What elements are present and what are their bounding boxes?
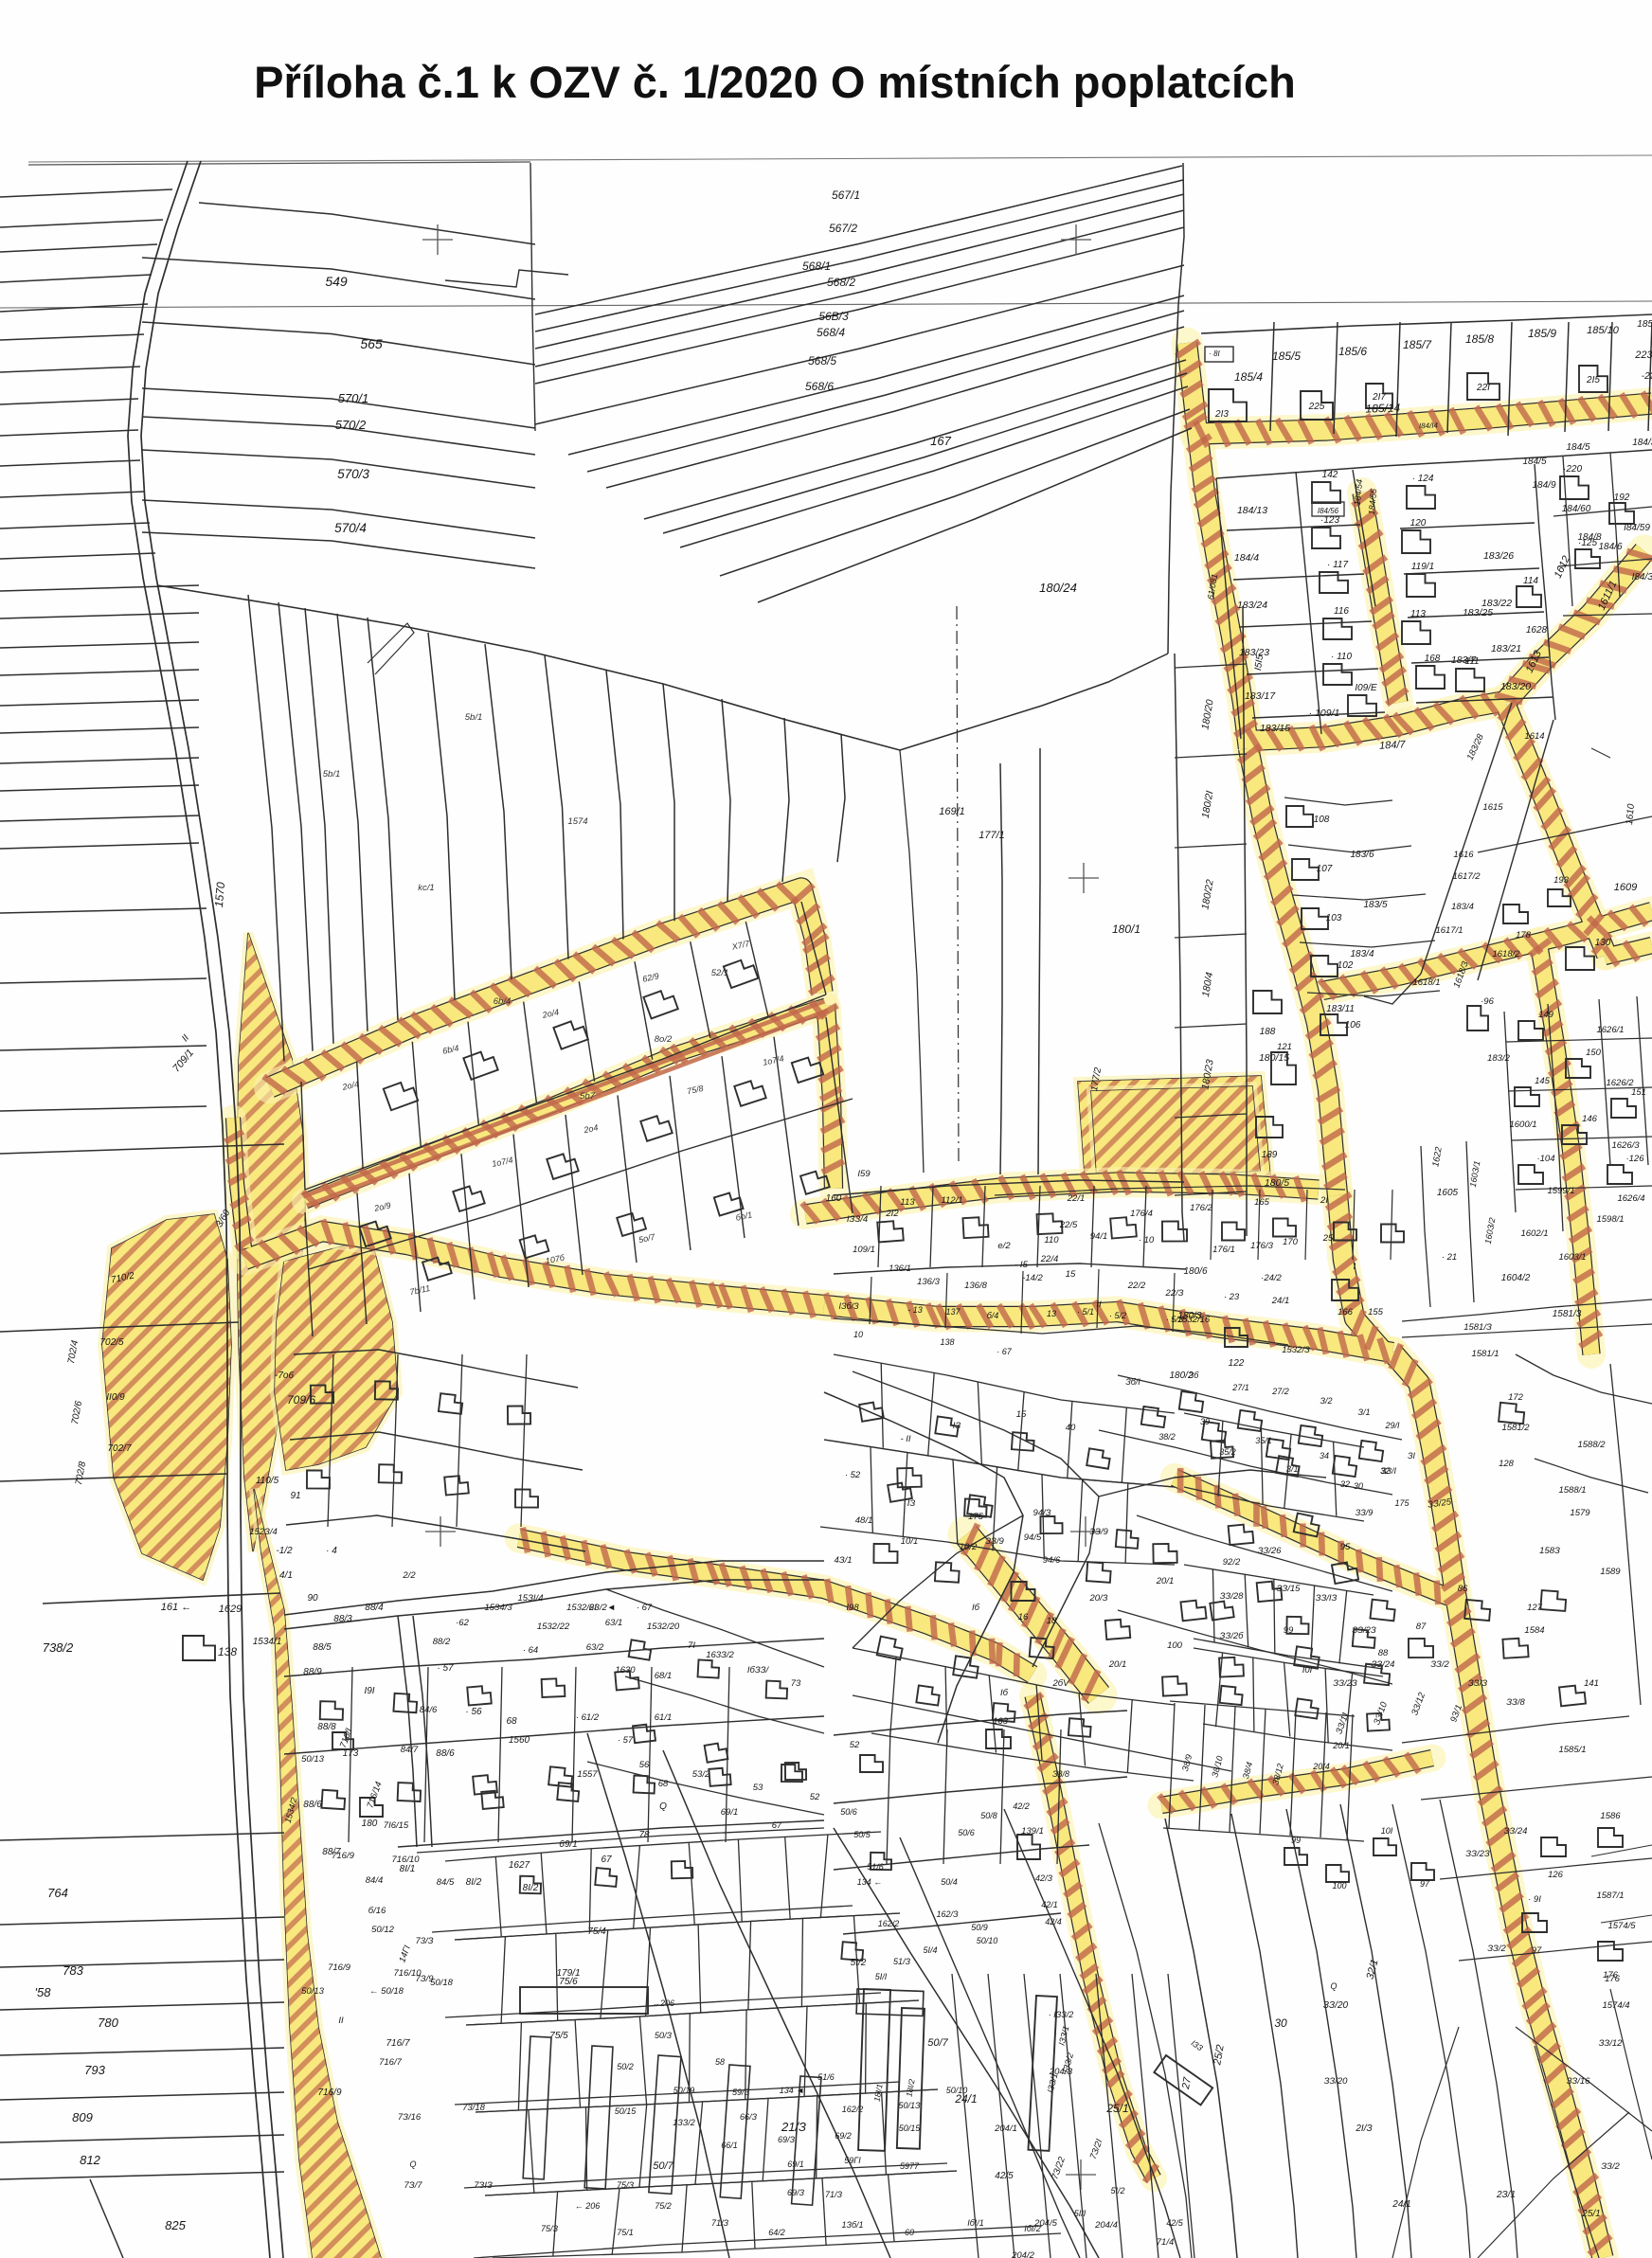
svg-text:1599/1: 1599/1 bbox=[1547, 1186, 1574, 1196]
svg-text:· I5: · I5 bbox=[1015, 1260, 1028, 1270]
svg-text:I98: I98 bbox=[846, 1603, 859, 1613]
svg-text:184/4: 184/4 bbox=[1234, 552, 1259, 564]
svg-text:780: 780 bbox=[98, 2016, 118, 2030]
svg-text:568/6: 568/6 bbox=[805, 380, 834, 393]
svg-text:716/7: 716/7 bbox=[379, 2057, 402, 2068]
svg-text:IЗ: IЗ bbox=[907, 1498, 916, 1509]
svg-text:2/2: 2/2 bbox=[402, 1570, 416, 1581]
svg-text:1557: 1557 bbox=[577, 1769, 598, 1780]
svg-text:87: 87 bbox=[1416, 1622, 1427, 1632]
svg-text:88: 88 bbox=[1378, 1648, 1389, 1658]
svg-text:51/6: 51/6 bbox=[867, 1862, 884, 1872]
svg-text:5b/1: 5b/1 bbox=[323, 769, 341, 780]
svg-text:1534/1: 1534/1 bbox=[253, 1637, 282, 1647]
svg-text:I84/59: I84/59 bbox=[1624, 523, 1650, 533]
svg-text:184/9: 184/9 bbox=[1532, 480, 1555, 491]
svg-text:·62: ·62 bbox=[456, 1618, 469, 1628]
svg-text:163: 163 bbox=[993, 1716, 1009, 1727]
svg-text:1534/3: 1534/3 bbox=[484, 1603, 512, 1613]
svg-text:702/7: 702/7 bbox=[107, 1443, 131, 1454]
svg-text:88/6: 88/6 bbox=[303, 1800, 322, 1810]
svg-text:2I3: 2I3 bbox=[1214, 409, 1229, 420]
svg-text:88/2: 88/2 bbox=[433, 1637, 451, 1647]
svg-text:1598/1: 1598/1 bbox=[1596, 1214, 1624, 1225]
svg-text:8o/2: 8o/2 bbox=[655, 1034, 673, 1045]
svg-text:42/5: 42/5 bbox=[995, 2171, 1014, 2181]
svg-text:155: 155 bbox=[1368, 1307, 1384, 1317]
svg-text:1626/2: 1626/2 bbox=[1606, 1078, 1634, 1088]
svg-text:24/1: 24/1 bbox=[1392, 2199, 1410, 2210]
svg-text:← 206: ← 206 bbox=[575, 2201, 601, 2211]
svg-text:69/1: 69/1 bbox=[559, 1839, 577, 1850]
svg-text:185/14: 185/14 bbox=[1365, 401, 1400, 415]
svg-text:568/5: 568/5 bbox=[808, 354, 836, 367]
svg-text:128: 128 bbox=[1499, 1459, 1515, 1469]
svg-text:ЗЗ/2З: ЗЗ/2З bbox=[1465, 1849, 1490, 1859]
svg-text:176/1: 176/1 bbox=[1212, 1245, 1235, 1255]
svg-text:63/2: 63/2 bbox=[586, 1642, 604, 1653]
svg-text:1630: 1630 bbox=[615, 1665, 636, 1676]
svg-text:5I/2: 5I/2 bbox=[1110, 2186, 1124, 2195]
svg-text:88/6: 88/6 bbox=[436, 1748, 455, 1759]
svg-text:1605: 1605 bbox=[1437, 1188, 1459, 1198]
svg-text:68: 68 bbox=[506, 1716, 517, 1727]
svg-text:84/7: 84/7 bbox=[401, 1745, 419, 1755]
svg-text:122: 122 bbox=[1229, 1358, 1245, 1369]
svg-text:ЗЗ/2: ЗЗ/2 bbox=[1430, 1659, 1449, 1670]
svg-text:e/2: e/2 bbox=[997, 1241, 1011, 1251]
svg-text:ЗЗ/15: ЗЗ/15 bbox=[1277, 1584, 1302, 1594]
svg-text:88/9: 88/9 bbox=[303, 1667, 322, 1677]
svg-text:158З: 158З bbox=[1539, 1546, 1560, 1556]
svg-text:183/5: 183/5 bbox=[1363, 900, 1387, 910]
svg-text:151: 151 bbox=[1631, 1087, 1646, 1098]
svg-text:5b/1: 5b/1 bbox=[465, 712, 483, 723]
svg-text:100: 100 bbox=[1167, 1640, 1183, 1651]
svg-text:180/24: 180/24 bbox=[1039, 581, 1077, 595]
svg-text:6З/2◄: 6З/2◄ bbox=[589, 1603, 616, 1613]
svg-text:1604/2: 1604/2 bbox=[1501, 1273, 1531, 1283]
svg-text:- II: - II bbox=[900, 1434, 910, 1444]
svg-text:← 50/18: ← 50/18 bbox=[369, 1986, 404, 1997]
svg-text:165: 165 bbox=[1254, 1197, 1270, 1208]
svg-text:50/13: 50/13 bbox=[301, 1986, 324, 1997]
svg-text:53/2: 53/2 bbox=[692, 1769, 710, 1780]
svg-text:184/5: 184/5 bbox=[1522, 457, 1546, 467]
svg-text:183/2: 183/2 bbox=[1487, 1053, 1510, 1064]
svg-text:568/2: 568/2 bbox=[827, 276, 855, 289]
svg-text:185/5: 185/5 bbox=[1272, 349, 1301, 363]
svg-text:161 ←: 161 ← bbox=[161, 1602, 191, 1613]
svg-text:· 10: · 10 bbox=[1139, 1235, 1155, 1245]
svg-text:225: 225 bbox=[1308, 402, 1325, 412]
svg-text:1Зб/1: 1Зб/1 bbox=[841, 2220, 863, 2230]
svg-text:10I: 10I bbox=[1381, 1826, 1393, 1836]
svg-text:22/1: 22/1 bbox=[1067, 1193, 1086, 1204]
svg-text:I9I: I9I bbox=[364, 1686, 374, 1696]
svg-text:5b7: 5b7 bbox=[580, 1091, 596, 1102]
svg-text:1626/1: 1626/1 bbox=[1596, 1025, 1624, 1035]
svg-text:180/1: 180/1 bbox=[1112, 923, 1140, 936]
svg-text:192: 192 bbox=[1614, 493, 1630, 503]
svg-text:1629: 1629 bbox=[219, 1604, 242, 1615]
svg-text:50/12: 50/12 bbox=[371, 1925, 394, 1935]
svg-text:716/10: 716/10 bbox=[391, 1855, 420, 1865]
svg-text:716/7: 716/7 bbox=[386, 2038, 409, 2049]
svg-text:-14/2: -14/2 bbox=[1022, 1273, 1043, 1283]
svg-text:25: 25 bbox=[1322, 1233, 1334, 1244]
svg-text:61/1: 61/1 bbox=[655, 1712, 673, 1723]
svg-text:1581/З: 1581/З bbox=[1463, 1322, 1492, 1333]
svg-text:180/6: 180/6 bbox=[1183, 1266, 1207, 1277]
svg-text:1587/1: 1587/1 bbox=[1596, 1891, 1624, 1901]
svg-text:570/1: 570/1 bbox=[338, 391, 369, 405]
svg-text:42/1: 42/1 bbox=[1041, 1900, 1058, 1909]
svg-text:30: 30 bbox=[1354, 1481, 1363, 1491]
svg-text:193: 193 bbox=[1553, 875, 1570, 886]
svg-text:7ЗIЗ: 7ЗIЗ bbox=[474, 2180, 493, 2191]
svg-text:1581/3: 1581/3 bbox=[1553, 1309, 1582, 1319]
svg-text:1586: 1586 bbox=[1600, 1811, 1621, 1821]
svg-text:8I/2: 8I/2 bbox=[466, 1877, 482, 1888]
svg-text:113: 113 bbox=[1410, 609, 1426, 619]
svg-text:139/1: 139/1 bbox=[1021, 1826, 1044, 1837]
svg-text:100: 100 bbox=[1332, 1881, 1346, 1891]
svg-text:120: 120 bbox=[1410, 518, 1427, 529]
svg-text:141: 141 bbox=[1584, 1678, 1599, 1689]
svg-text:ЗЗ/20: ЗЗ/20 bbox=[1323, 2000, 1349, 2011]
svg-text:113: 113 bbox=[900, 1197, 915, 1208]
svg-text:ЗЗ/З: ЗЗ/З bbox=[1468, 1678, 1487, 1689]
svg-text:71/З: 71/З bbox=[711, 2218, 729, 2228]
svg-text:1581/1: 1581/1 bbox=[1471, 1349, 1499, 1359]
svg-text:1609: 1609 bbox=[1614, 882, 1637, 893]
svg-text:570/3: 570/3 bbox=[337, 467, 369, 481]
svg-text:1589: 1589 bbox=[1600, 1567, 1621, 1577]
svg-text:· 9I: · 9I bbox=[1528, 1894, 1541, 1905]
svg-text:68: 68 bbox=[658, 1779, 669, 1789]
svg-text:1614: 1614 bbox=[1524, 731, 1544, 742]
svg-text:116: 116 bbox=[1334, 606, 1349, 617]
svg-text:29/I: 29/I bbox=[1384, 1421, 1400, 1430]
svg-text:183/4: 183/4 bbox=[1350, 949, 1374, 959]
svg-text:-1/2: -1/2 bbox=[276, 1546, 293, 1556]
svg-text:1574/5: 1574/5 bbox=[1607, 1921, 1636, 1931]
svg-text:1616: 1616 bbox=[1453, 850, 1474, 860]
svg-text:110: 110 bbox=[1044, 1235, 1059, 1245]
svg-text:185/8: 185/8 bbox=[1465, 332, 1494, 346]
svg-text:IЗЗ/4: IЗЗ/4 bbox=[847, 1214, 868, 1225]
svg-text:· 21: · 21 bbox=[1442, 1252, 1457, 1263]
svg-text:56B/3: 56B/3 bbox=[818, 310, 849, 323]
svg-text:20/1: 20/1 bbox=[1108, 1659, 1127, 1670]
svg-text:·123: ·123 bbox=[1320, 515, 1339, 526]
svg-text:69/1: 69/1 bbox=[721, 1807, 739, 1818]
svg-text:22/4: 22/4 bbox=[1040, 1254, 1059, 1264]
svg-text:138: 138 bbox=[218, 1645, 237, 1658]
svg-text:185/: 185/ bbox=[1637, 319, 1652, 330]
svg-text:20/4: 20/4 bbox=[1312, 1762, 1330, 1771]
svg-text:5I/2: 5I/2 bbox=[851, 1958, 867, 1968]
svg-text:169/1: 169/1 bbox=[939, 806, 965, 817]
svg-text:1570: 1570 bbox=[212, 881, 227, 907]
svg-text:30: 30 bbox=[1274, 2016, 1287, 2030]
svg-text:· 4: · 4 bbox=[326, 1546, 337, 1556]
svg-text:1584: 1584 bbox=[1524, 1625, 1544, 1636]
svg-text:162/З: 162/З bbox=[936, 1909, 959, 1919]
svg-text:812: 812 bbox=[80, 2153, 100, 2167]
svg-text:6b/4: 6b/4 bbox=[494, 996, 512, 1007]
svg-text:2I/З: 2I/З bbox=[1355, 2124, 1372, 2134]
svg-text:184/60: 184/60 bbox=[1562, 504, 1591, 514]
svg-text:119/1: 119/1 bbox=[1411, 562, 1434, 572]
svg-text:59ГI: 59ГI bbox=[844, 2156, 861, 2165]
svg-text:114: 114 bbox=[1523, 576, 1538, 586]
svg-text:183/26: 183/26 bbox=[1483, 550, 1514, 562]
svg-text:50/7: 50/7 bbox=[653, 2160, 673, 2172]
svg-text:·220: ·220 bbox=[1563, 464, 1582, 475]
svg-text:69/З: 69/З bbox=[787, 2188, 805, 2197]
svg-text:· 5/2: · 5/2 bbox=[1109, 1311, 1126, 1320]
svg-text:137: 137 bbox=[945, 1307, 961, 1317]
svg-text:1618/1: 1618/1 bbox=[1412, 977, 1440, 988]
svg-text:50/18: 50/18 bbox=[430, 1978, 453, 1988]
svg-text:ЗЗ/2: ЗЗ/2 bbox=[1601, 2161, 1620, 2172]
svg-text:146: 146 bbox=[1582, 1114, 1598, 1124]
svg-text:50/1З: 50/1З bbox=[898, 2101, 921, 2110]
svg-text:20/1: 20/1 bbox=[1156, 1576, 1175, 1586]
svg-text:180: 180 bbox=[362, 1819, 378, 1829]
svg-text:176/3: 176/3 bbox=[1250, 1241, 1273, 1251]
svg-text:716/9: 716/9 bbox=[332, 1851, 354, 1861]
svg-text:166: 166 bbox=[1338, 1307, 1354, 1317]
svg-text:50/5: 50/5 bbox=[853, 1830, 871, 1839]
svg-text:176: 176 bbox=[1603, 1970, 1619, 1980]
svg-text:177/1: 177/1 bbox=[979, 830, 1005, 841]
svg-text:-7o6: -7o6 bbox=[275, 1371, 294, 1381]
svg-text:71/4: 71/4 bbox=[1157, 2237, 1175, 2248]
svg-text:ЗI: ЗI bbox=[1408, 1451, 1416, 1461]
svg-text:Příloha č.1 k OZV č. 1/2020 O: Příloha č.1 k OZV č. 1/2020 O místních p… bbox=[254, 57, 1296, 107]
svg-text:183/17: 183/17 bbox=[1245, 690, 1276, 702]
svg-text:7З/9: 7З/9 bbox=[415, 1974, 434, 1984]
svg-text:50/6: 50/6 bbox=[840, 1807, 857, 1817]
svg-text:1532/16: 1532/16 bbox=[1177, 1315, 1211, 1325]
svg-text:· 117: · 117 bbox=[1327, 560, 1348, 570]
svg-text:64/2: 64/2 bbox=[768, 2228, 785, 2237]
svg-text:84/4: 84/4 bbox=[366, 1875, 384, 1886]
svg-text:б/16: б/16 bbox=[368, 1906, 386, 1916]
svg-text:ЗЗ/8: ЗЗ/8 bbox=[1506, 1697, 1525, 1708]
svg-text:·126: ·126 bbox=[1625, 1154, 1644, 1164]
svg-text:I59: I59 bbox=[857, 1169, 871, 1179]
svg-text:162/2: 162/2 bbox=[878, 1919, 900, 1928]
svg-text:183/20: 183/20 bbox=[1500, 681, 1531, 692]
svg-text:50/13: 50/13 bbox=[301, 1754, 324, 1765]
svg-text:183/25: 183/25 bbox=[1463, 607, 1493, 618]
svg-text:б/4: б/4 bbox=[987, 1311, 999, 1320]
svg-text:II0/9: II0/9 bbox=[106, 1392, 125, 1403]
svg-text:168: 168 bbox=[1425, 654, 1441, 664]
svg-text:ЗЗ/9: ЗЗ/9 bbox=[1089, 1527, 1108, 1537]
svg-text:42/4: 42/4 bbox=[1045, 1917, 1062, 1926]
svg-text:18: 18 bbox=[1047, 1616, 1057, 1626]
svg-text:88/3: 88/3 bbox=[333, 1614, 352, 1624]
svg-text:II: II bbox=[1096, 1299, 1102, 1310]
svg-text:48/1: 48/1 bbox=[855, 1515, 873, 1526]
svg-text:67: 67 bbox=[601, 1855, 612, 1865]
svg-text:204/2: 204/2 bbox=[1011, 2250, 1034, 2258]
svg-text:130: 130 bbox=[1595, 938, 1611, 948]
svg-text:50/10: 50/10 bbox=[946, 2086, 968, 2095]
svg-text:68/1: 68/1 bbox=[655, 1671, 673, 1681]
svg-text:67: 67 bbox=[772, 1820, 782, 1831]
svg-text:10: 10 bbox=[853, 1330, 863, 1339]
svg-text:16: 16 bbox=[1018, 1612, 1029, 1622]
svg-text:783: 783 bbox=[63, 1963, 83, 1978]
svg-text:50/З: 50/З bbox=[655, 2031, 673, 2040]
svg-text:20/1: 20/1 bbox=[1332, 1741, 1350, 1750]
svg-text:88/5: 88/5 bbox=[313, 1642, 332, 1653]
svg-text:702/5: 702/5 bbox=[99, 1337, 123, 1348]
svg-text:178: 178 bbox=[1516, 930, 1532, 941]
svg-text:175: 175 bbox=[1394, 1498, 1410, 1508]
svg-text:112/1: 112/1 bbox=[941, 1195, 962, 1206]
svg-text:2I: 2I bbox=[1320, 1195, 1328, 1206]
svg-text:ЗЗ/26: ЗЗ/26 bbox=[1258, 1546, 1283, 1556]
svg-text:183/15: 183/15 bbox=[1260, 723, 1290, 734]
svg-text:Iб: Iб bbox=[972, 1603, 980, 1613]
svg-text:121: 121 bbox=[1277, 1042, 1292, 1052]
svg-text:73/З: 73/З bbox=[415, 1936, 433, 1946]
svg-text:1627: 1627 bbox=[509, 1860, 530, 1871]
svg-text:22I: 22I bbox=[1476, 383, 1490, 393]
svg-text:92/2: 92/2 bbox=[1223, 1557, 1241, 1568]
svg-text:138: 138 bbox=[940, 1337, 954, 1347]
svg-text:8I/1: 8I/1 bbox=[400, 1864, 416, 1874]
svg-text:94/1: 94/1 bbox=[1090, 1231, 1108, 1242]
svg-text:63/1: 63/1 bbox=[605, 1618, 623, 1628]
svg-text:136/8: 136/8 bbox=[964, 1281, 987, 1291]
svg-text:13: 13 bbox=[1047, 1309, 1056, 1318]
svg-text:1560: 1560 bbox=[509, 1735, 530, 1746]
svg-text:152З/4: 152З/4 bbox=[249, 1527, 278, 1537]
svg-text:1610: 1610 bbox=[1625, 803, 1637, 826]
svg-text:69/З: 69/З bbox=[778, 2135, 796, 2144]
svg-text:565: 565 bbox=[360, 336, 383, 351]
svg-text:5I/I: 5I/I bbox=[875, 1972, 888, 1981]
svg-text:764: 764 bbox=[47, 1886, 68, 1900]
svg-text:·24/2: ·24/2 bbox=[1261, 1273, 1282, 1283]
svg-text:1532/22: 1532/22 bbox=[537, 1622, 570, 1632]
svg-text:69/1: 69/1 bbox=[787, 2159, 804, 2169]
svg-text:185/4: 185/4 bbox=[1234, 370, 1263, 384]
svg-text:78: 78 bbox=[638, 1830, 650, 1840]
svg-text:· 109/1: · 109/1 bbox=[1309, 708, 1340, 719]
svg-text:4/1: 4/1 bbox=[279, 1570, 293, 1581]
svg-text:109/1: 109/1 bbox=[853, 1245, 875, 1255]
svg-text:· 5/1: · 5/1 bbox=[1077, 1307, 1094, 1317]
svg-text:I84/З: I84/З bbox=[1632, 572, 1652, 582]
svg-text:183/24: 183/24 bbox=[1237, 600, 1267, 611]
svg-text:1581/2: 1581/2 bbox=[1501, 1423, 1530, 1433]
svg-text:136/1: 136/1 bbox=[889, 1263, 911, 1274]
svg-text:53: 53 bbox=[753, 1783, 763, 1793]
svg-text:-22: -22 bbox=[1642, 371, 1652, 382]
svg-text:ЗЗ/20: ЗЗ/20 bbox=[1324, 2076, 1349, 2087]
svg-text:94/5: 94/5 bbox=[1024, 1532, 1042, 1543]
svg-text:I84/I4: I84/I4 bbox=[1419, 421, 1439, 431]
svg-text:50/15: 50/15 bbox=[615, 2106, 637, 2116]
svg-text:180/15: 180/15 bbox=[1259, 1052, 1289, 1064]
svg-text:· 57: · 57 bbox=[618, 1735, 634, 1746]
svg-text:ЗЗ/28: ЗЗ/28 bbox=[1220, 1591, 1245, 1602]
svg-text:73: 73 bbox=[791, 1678, 801, 1689]
svg-text:1617/2: 1617/2 bbox=[1452, 871, 1481, 882]
svg-text:204/5: 204/5 bbox=[1033, 2218, 1057, 2229]
svg-text:IбЗЗ/: IбЗЗ/ bbox=[747, 1665, 770, 1676]
svg-text:50/2: 50/2 bbox=[617, 2062, 634, 2071]
svg-text:IЗб/З: IЗб/З bbox=[838, 1301, 859, 1311]
svg-text:1532/З: 1532/З bbox=[1282, 1345, 1310, 1355]
svg-text:ЗЗ/IЗ: ЗЗ/IЗ bbox=[1316, 1593, 1338, 1604]
svg-text:1600/1: 1600/1 bbox=[1509, 1120, 1536, 1130]
svg-text:ЗЗ/12: ЗЗ/12 bbox=[1599, 2038, 1624, 2049]
svg-text:7З/16: 7З/16 bbox=[398, 2112, 422, 2123]
svg-text:185/9: 185/9 bbox=[1528, 327, 1556, 340]
svg-text:35/1: 35/1 bbox=[1255, 1436, 1272, 1445]
svg-text:22/З: 22/З bbox=[1164, 1288, 1183, 1299]
svg-text:568/4: 568/4 bbox=[817, 326, 845, 339]
svg-text:24/1: 24/1 bbox=[1271, 1296, 1290, 1306]
svg-text:- 13: - 13 bbox=[907, 1305, 923, 1315]
svg-text:179/1: 179/1 bbox=[556, 1968, 580, 1979]
svg-text:· 56: · 56 bbox=[465, 1707, 482, 1717]
svg-text:· 61/2: · 61/2 bbox=[576, 1712, 600, 1723]
svg-text:II: II bbox=[338, 2016, 344, 2026]
svg-text:8I/2: 8I/2 bbox=[523, 1883, 539, 1893]
svg-text:184/7: 184/7 bbox=[1379, 739, 1407, 751]
svg-text:567/2: 567/2 bbox=[829, 222, 857, 235]
svg-text:1628: 1628 bbox=[1526, 625, 1548, 636]
svg-text:50/4: 50/4 bbox=[941, 1877, 958, 1887]
svg-text:50/10: 50/10 bbox=[977, 1936, 998, 1945]
svg-text:183/7: 183/7 bbox=[1451, 654, 1477, 666]
svg-text:50/15: 50/15 bbox=[899, 2124, 922, 2133]
svg-text:→206: →206 bbox=[652, 1998, 674, 2008]
svg-text:204/1: 204/1 bbox=[994, 2124, 1017, 2134]
svg-text:145: 145 bbox=[1535, 1076, 1551, 1086]
svg-text:· 67: · 67 bbox=[997, 1347, 1013, 1356]
svg-text:184/6: 184/6 bbox=[1598, 542, 1622, 552]
svg-text:184/З: 184/З bbox=[1632, 438, 1652, 448]
svg-text:ЗЗ/2: ЗЗ/2 bbox=[1487, 1944, 1506, 1954]
svg-text:· IЗЗ/2: · IЗЗ/2 bbox=[1049, 2010, 1074, 2019]
svg-text:27/2: 27/2 bbox=[1271, 1387, 1289, 1396]
svg-text:738/2: 738/2 bbox=[43, 1640, 74, 1655]
svg-text:223.: 223. bbox=[1634, 349, 1652, 361]
svg-text:7I: 7I bbox=[688, 1640, 695, 1651]
svg-text:58: 58 bbox=[715, 2057, 725, 2067]
svg-text:· 52: · 52 bbox=[845, 1470, 861, 1480]
svg-text:З/2: З/2 bbox=[1320, 1396, 1332, 1406]
svg-text:· 64: · 64 bbox=[523, 1645, 538, 1656]
svg-text:71/З: 71/З bbox=[825, 2190, 843, 2199]
svg-text:34: 34 bbox=[1320, 1451, 1329, 1461]
svg-text:142: 142 bbox=[1322, 470, 1338, 480]
svg-text:5I/4: 5I/4 bbox=[923, 1945, 937, 1955]
svg-text:I: I bbox=[1354, 1262, 1356, 1272]
